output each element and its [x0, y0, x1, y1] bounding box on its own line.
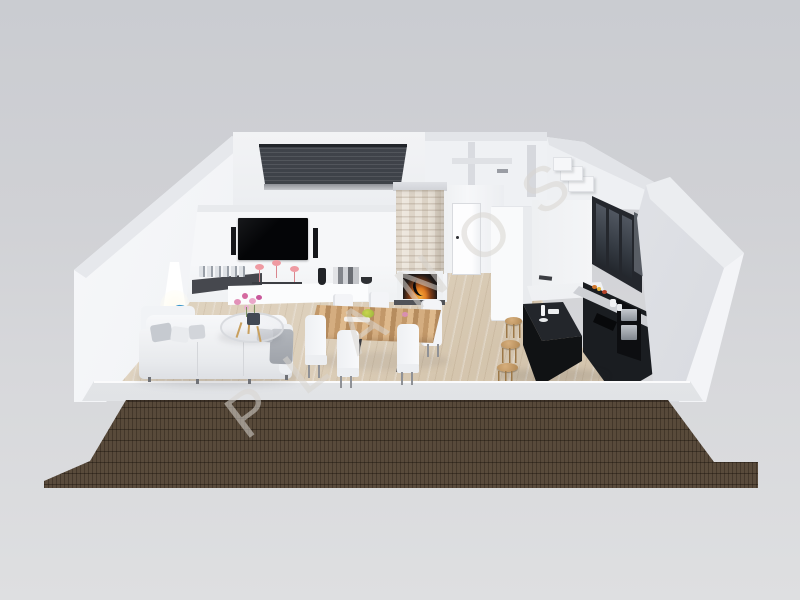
sofa-cushion-seam [197, 342, 198, 376]
glass-cabinet-pane [596, 203, 606, 268]
wall-oven [621, 309, 637, 321]
flamingo-leg [276, 266, 277, 278]
orchid-flower [256, 295, 262, 300]
glass-cabinet-pane [622, 215, 632, 280]
orchid-flower [242, 293, 248, 299]
sofa-leg [148, 377, 151, 382]
shutter-top-bar [259, 144, 407, 147]
speaker-left [231, 227, 236, 255]
kettle [610, 299, 616, 307]
orchid-flower [234, 299, 241, 305]
sofa-leg [196, 379, 199, 384]
partition-wall [452, 158, 512, 164]
bathroom-wall-top [425, 132, 547, 141]
flamingo-leg [259, 270, 260, 282]
sofa-pillow [170, 326, 190, 343]
island-plate [539, 318, 548, 322]
sofa-pillow [188, 324, 205, 339]
shutter-shadow [264, 184, 402, 190]
food-item [597, 287, 601, 291]
figurine-base [252, 282, 302, 284]
floor-plan-render: PLANOS [0, 0, 800, 600]
bar-stool-legs [506, 324, 521, 338]
glass-cabinet-pane [609, 209, 619, 274]
chair-legs [401, 372, 413, 385]
food-item [602, 290, 607, 294]
island-dishes [548, 309, 559, 314]
chair-legs [427, 344, 439, 357]
black-vase [318, 268, 326, 285]
canister-set [199, 266, 245, 277]
orchid-flower [249, 298, 256, 304]
tv-screen [238, 218, 308, 260]
small-appliance [617, 304, 622, 311]
island-bottle [541, 305, 545, 316]
book-stack [333, 267, 359, 284]
flower-vase [247, 313, 260, 325]
speaker-right [313, 228, 318, 258]
wall-oven [621, 325, 637, 340]
bathroom-sink [497, 169, 508, 173]
bar-stool-legs [502, 348, 519, 363]
